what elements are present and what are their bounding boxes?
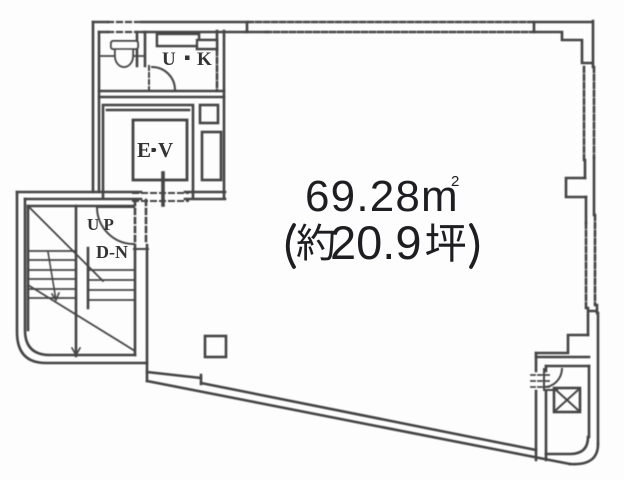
svg-text:U P: U P [87,215,114,234]
svg-text:U·K: U·K [162,49,219,70]
svg-text:69.28: 69.28 [305,172,421,221]
svg-text:2: 2 [451,173,459,190]
svg-text:D-N: D-N [96,242,128,262]
svg-text:E·V: E·V [137,138,173,162]
svg-text:20.9: 20.9 [330,216,421,269]
